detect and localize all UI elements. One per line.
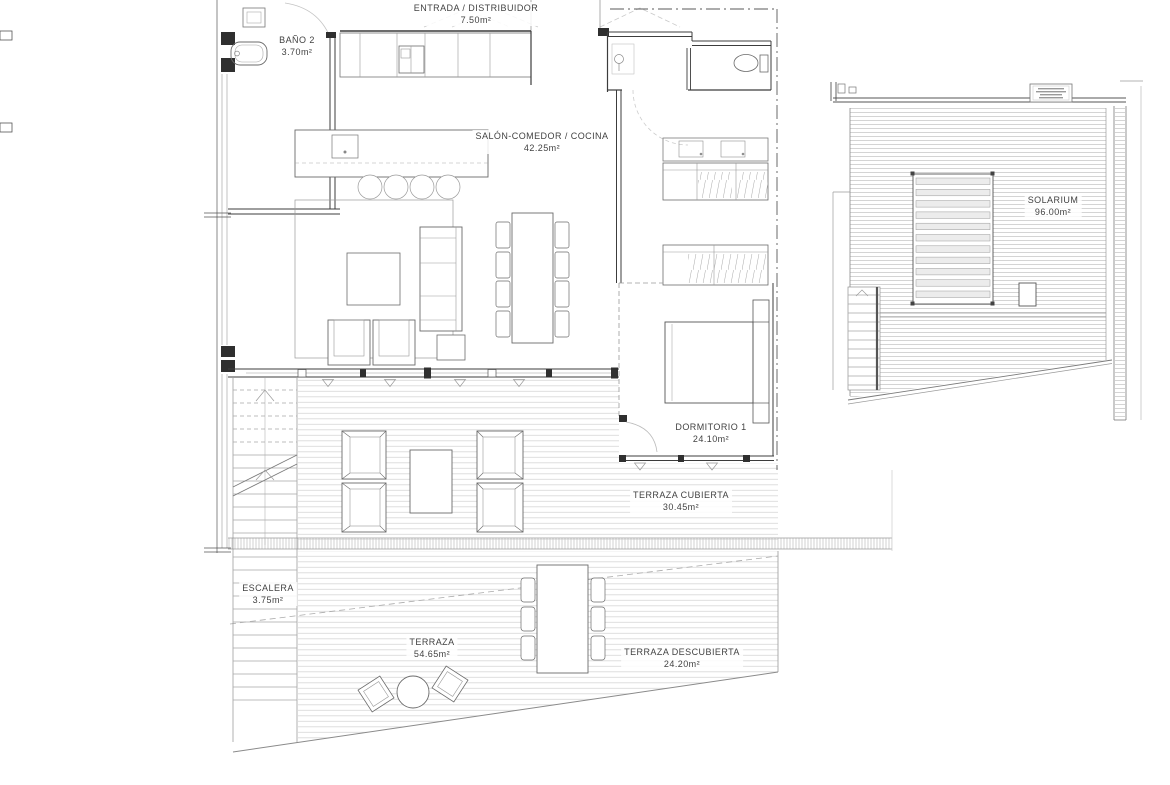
- stairs-escalera: [233, 378, 297, 743]
- kitchen-island: [295, 130, 488, 199]
- bed: [665, 300, 769, 423]
- chair: [555, 311, 569, 337]
- wardrobe: [663, 245, 768, 285]
- room-area: 42.25m²: [476, 142, 609, 154]
- side-table: [437, 335, 465, 360]
- chair: [555, 281, 569, 307]
- chair: [555, 222, 569, 248]
- armchair: [328, 320, 370, 365]
- sofa: [420, 227, 462, 331]
- headboard: [753, 300, 769, 423]
- bedroom-door-swing-arc: [626, 422, 657, 452]
- chair: [555, 252, 569, 278]
- room-area: 96.00m²: [1028, 206, 1079, 218]
- lounge-chair: [477, 483, 523, 532]
- chair: [521, 636, 535, 660]
- room-label-solarium: SOLARIUM 96.00m²: [1025, 194, 1082, 218]
- pergola: [911, 172, 995, 306]
- room-label-terraza-descubierta: TERRAZA DESCUBIERTA 24.20m²: [621, 646, 743, 670]
- room-name: TERRAZA: [409, 636, 454, 648]
- wardrobe: [663, 163, 768, 200]
- room-name: TERRAZA CUBIERTA: [633, 489, 729, 501]
- plaque-text-line: [1040, 94, 1062, 95]
- stool: [384, 175, 408, 199]
- room-area: 24.20m²: [624, 658, 740, 670]
- room-area: 54.65m²: [409, 648, 454, 660]
- stool: [436, 175, 460, 199]
- room-name: ESCALERA: [242, 582, 294, 594]
- kitchen-counter: [340, 31, 531, 85]
- bathtub: [231, 42, 267, 65]
- chair: [496, 222, 510, 248]
- plaque-text-line: [1038, 88, 1064, 89]
- vanity: [663, 138, 768, 161]
- room-area: 7.50m²: [414, 14, 538, 26]
- room-name: TERRAZA DESCUBIERTA: [624, 646, 740, 658]
- bistro-table: [397, 676, 429, 708]
- dining-table: [512, 213, 553, 343]
- bathroom-door-swing-arc: [633, 90, 688, 145]
- solarium-stairs: [848, 287, 880, 390]
- solarium-top-wall: [831, 81, 1143, 102]
- chair: [591, 578, 605, 602]
- roof-box: [1019, 283, 1036, 306]
- room-area: 24.10m²: [675, 433, 746, 445]
- room-area: 3.75m²: [242, 594, 294, 606]
- entry-door-swing-arc: [285, 3, 330, 37]
- solarium-block: [831, 81, 1143, 420]
- living-area: [295, 200, 465, 365]
- shower: [612, 44, 634, 74]
- chair: [591, 636, 605, 660]
- chair: [521, 607, 535, 631]
- stool: [410, 175, 434, 199]
- plaque-text-line: [1036, 91, 1066, 92]
- corridor-wardrobes: [617, 90, 769, 285]
- outdoor-table: [537, 565, 588, 673]
- room-area: 30.45m²: [633, 501, 729, 513]
- plaque-text-line: [1039, 97, 1063, 98]
- room-area: 3.70m²: [279, 46, 315, 58]
- chair: [496, 311, 510, 337]
- floor-plan-canvas: ENTRADA / DISTRIBUIDOR 7.50m² BAÑO 2 3.7…: [0, 0, 1170, 785]
- floor-plan-drawing: [0, 0, 1170, 785]
- room-name: DORMITORIO 1: [675, 421, 746, 433]
- room-label-bano2: BAÑO 2 3.70m²: [276, 34, 318, 58]
- dining-set: [496, 213, 569, 343]
- room-name: BAÑO 2: [279, 34, 315, 46]
- room-label-escalera: ESCALERA 3.75m²: [239, 582, 297, 606]
- stool: [358, 175, 382, 199]
- chair: [496, 252, 510, 278]
- room-label-terraza-cubierta: TERRAZA CUBIERTA 30.45m²: [630, 489, 732, 513]
- room-label-salon: SALÓN-COMEDOR / COCINA 42.25m²: [473, 130, 612, 154]
- ensuite-bathroom: [607, 32, 771, 145]
- terrace-coffee-table: [410, 450, 452, 513]
- armchair: [373, 320, 415, 365]
- lounge-chair: [342, 431, 386, 479]
- west-wall: [0, 0, 235, 553]
- room-name: SALÓN-COMEDOR / COCINA: [476, 130, 609, 142]
- toilet: [734, 55, 768, 73]
- room-label-terraza: TERRAZA 54.65m²: [406, 636, 457, 660]
- solarium-right-wall: [1114, 86, 1141, 420]
- coffee-table: [347, 253, 400, 305]
- lounge-chair: [477, 431, 523, 479]
- room-name: SOLARIUM: [1028, 194, 1079, 206]
- chair: [496, 281, 510, 307]
- chair: [521, 578, 535, 602]
- chair: [591, 607, 605, 631]
- sink: [243, 8, 265, 27]
- room-label-entrada: ENTRADA / DISTRIBUIDOR 7.50m²: [411, 2, 541, 26]
- outdoor-dining-set: [521, 565, 605, 673]
- room-name: ENTRADA / DISTRIBUIDOR: [414, 2, 538, 14]
- lounge-chair: [342, 483, 386, 532]
- room-label-dormitorio1: DORMITORIO 1 24.10m²: [672, 421, 749, 445]
- solarium-plaque: [1030, 84, 1072, 102]
